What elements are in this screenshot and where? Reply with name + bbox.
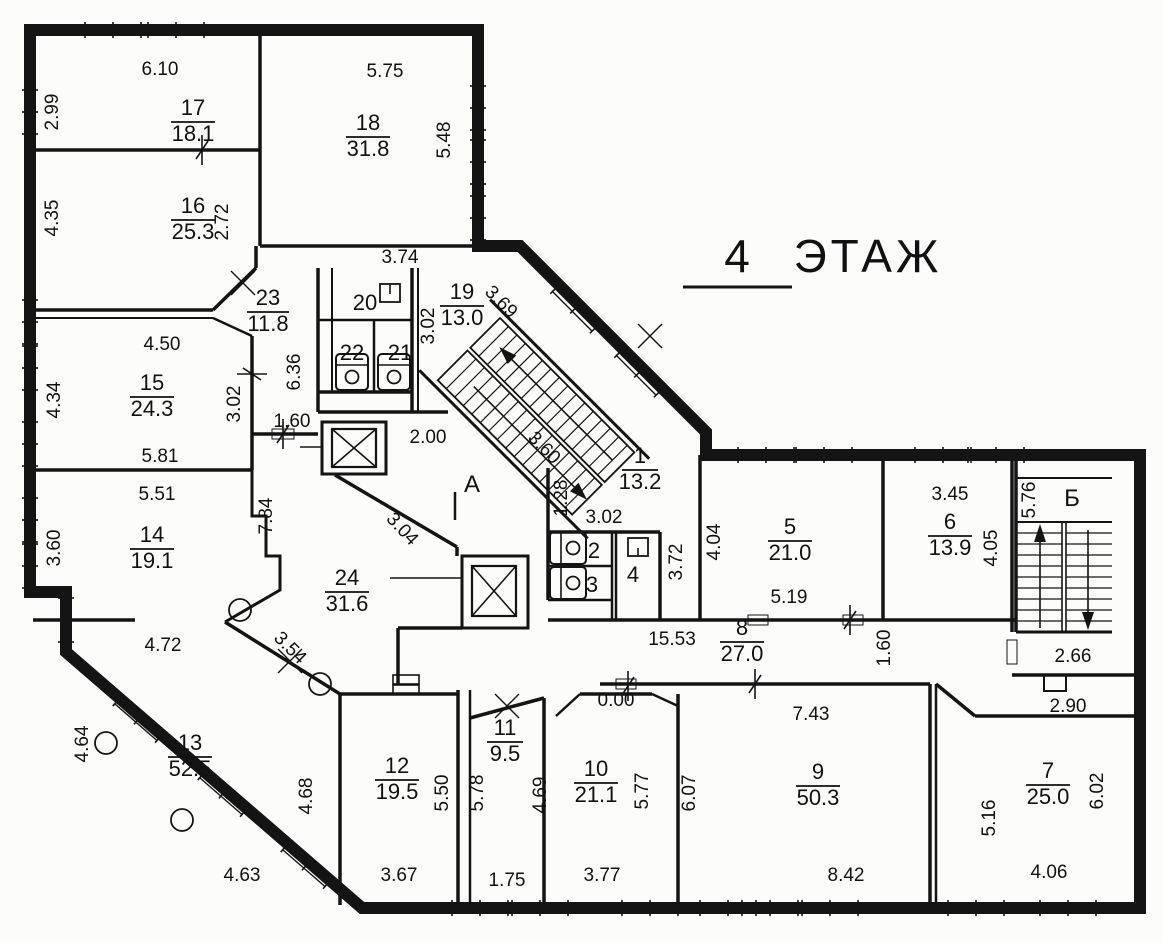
dim-r10-top: 0.00 bbox=[598, 690, 635, 711]
dim-r6-right: 4.05 bbox=[981, 530, 1002, 567]
dim-r7-top-strip: 2.90 bbox=[1050, 696, 1087, 717]
dim-r14-right: 7.84 bbox=[256, 497, 277, 534]
floor-plan-drawing: 4 ЭТАЖ 1718.1 1625.3 1831.8 1524.3 1419.… bbox=[0, 0, 1163, 943]
dim-r5-left: 4.04 bbox=[704, 523, 725, 560]
room-area-1: 13.2 bbox=[619, 469, 662, 494]
dim-r9-left: 6.07 bbox=[679, 775, 700, 812]
floor-plan-page: 4 ЭТАЖ 1718.1 1625.3 1831.8 1524.3 1419.… bbox=[0, 0, 1163, 943]
dim-hall-right: 3.72 bbox=[666, 544, 687, 581]
room-number-10: 10 bbox=[584, 756, 608, 781]
dim-lobby-diagonal: 3.04 bbox=[382, 509, 423, 551]
room-area-5: 21.0 bbox=[769, 540, 812, 565]
dim-r13-right: 4.68 bbox=[296, 778, 317, 815]
room-number-20: 20 bbox=[353, 290, 377, 315]
dim-r11-left: 5.78 bbox=[467, 775, 488, 812]
room-area-19: 13.0 bbox=[441, 305, 484, 330]
room-area-9: 50.3 bbox=[797, 785, 840, 810]
room-number-6: 6 bbox=[944, 509, 956, 534]
dim-r10-right: 5.77 bbox=[632, 773, 653, 810]
room-number-9: 9 bbox=[812, 759, 824, 784]
room-number-7: 7 bbox=[1042, 758, 1054, 783]
room-area-17: 18.1 bbox=[172, 121, 215, 146]
zone-label-stairwell-b: Б bbox=[1064, 485, 1080, 512]
room-number-3: 3 bbox=[586, 572, 598, 597]
wall-pier bbox=[1044, 675, 1066, 691]
dim-r15-right: 3.02 bbox=[224, 386, 245, 423]
dim-r13-diagonal: 3.54 bbox=[269, 628, 310, 669]
room-area-15: 24.3 bbox=[131, 396, 174, 421]
room-number-18: 18 bbox=[356, 110, 380, 135]
elevator-1-icon bbox=[322, 422, 386, 474]
dim-stair-b-bottom: 2.66 bbox=[1055, 646, 1092, 667]
dim-corridor-8-right: 1.60 bbox=[874, 630, 895, 667]
room-area-14: 19.1 bbox=[131, 548, 174, 573]
room-number-13: 13 bbox=[178, 730, 202, 755]
room-area-23: 11.8 bbox=[247, 311, 288, 336]
room-number-4: 4 bbox=[627, 562, 639, 587]
room-number-21: 21 bbox=[388, 340, 412, 365]
dim-door-1-60: 1.60 bbox=[274, 411, 311, 432]
dim-r12-bottom: 3.67 bbox=[381, 865, 418, 886]
room-area-8: 27.0 bbox=[721, 641, 764, 666]
room-number-24: 24 bbox=[335, 565, 359, 590]
dim-r11-bottom: 1.75 bbox=[489, 870, 526, 891]
room-number-15: 15 bbox=[140, 370, 164, 395]
dim-r7-left: 5.16 bbox=[979, 800, 1000, 837]
room-area-24: 31.6 bbox=[326, 591, 369, 616]
dim-r7-right: 6.02 bbox=[1087, 773, 1108, 810]
room-area-11: 9.5 bbox=[490, 741, 521, 766]
room-area-10: 21.1 bbox=[575, 782, 618, 807]
dim-r5-bottom: 5.19 bbox=[771, 587, 808, 608]
room-area-18: 31.8 bbox=[347, 136, 390, 161]
dim-stairs-bottom: 3.60 bbox=[523, 428, 564, 469]
dim-r15-bottom: 5.81 bbox=[142, 446, 179, 467]
dim-r16-height: 4.35 bbox=[42, 200, 63, 237]
room-number-23: 23 bbox=[256, 285, 280, 310]
room-number-11: 11 bbox=[494, 715, 517, 740]
dim-r14-top: 5.51 bbox=[139, 484, 176, 505]
room-area-7: 25.0 bbox=[1027, 784, 1070, 809]
dim-r10-left: 4.69 bbox=[530, 777, 551, 814]
room-number-14: 14 bbox=[140, 522, 164, 547]
dim-r18-width: 5.75 bbox=[367, 61, 404, 82]
dim-r15-width: 4.50 bbox=[144, 334, 181, 355]
dim-r13-bottom: 4.63 bbox=[224, 865, 261, 886]
dim-r18-height: 5.48 bbox=[434, 122, 455, 159]
floor-title-word: ЭТАЖ bbox=[794, 230, 943, 282]
dim-r9-top: 7.43 bbox=[793, 704, 830, 725]
dim-corridor-top: 3.74 bbox=[382, 247, 419, 268]
door-openings bbox=[272, 429, 1017, 689]
room-number-17: 17 bbox=[181, 95, 205, 120]
dim-r17-height: 2.99 bbox=[42, 94, 63, 131]
room-area-6: 13.9 bbox=[929, 535, 972, 560]
dim-lobby-width: 2.00 bbox=[410, 427, 447, 448]
dim-r19-diagonal: 3.69 bbox=[480, 282, 521, 323]
dim-r14-height: 3.60 bbox=[44, 530, 65, 567]
dim-r17-width: 6.10 bbox=[142, 59, 179, 80]
dim-r10-bottom: 3.77 bbox=[584, 865, 621, 886]
room-number-19: 19 bbox=[450, 279, 474, 304]
dim-r13-left: 4.64 bbox=[72, 725, 93, 762]
dim-r12-right: 5.50 bbox=[432, 775, 453, 812]
room-area-16: 25.3 bbox=[172, 219, 215, 244]
dim-r6-top: 3.45 bbox=[932, 484, 969, 505]
room-area-13: 52.5 bbox=[169, 756, 212, 781]
dim-r15-height: 4.34 bbox=[44, 381, 65, 418]
dim-r1-bottom: 3.02 bbox=[586, 507, 623, 528]
floor-title-number: 4 bbox=[724, 230, 750, 282]
room-number-12: 12 bbox=[385, 753, 409, 778]
dim-corridor-23: 6.36 bbox=[284, 354, 305, 391]
dim-r16-right: 2.72 bbox=[212, 204, 233, 241]
room-number-16: 16 bbox=[181, 193, 205, 218]
dim-r7-bottom: 4.06 bbox=[1031, 862, 1068, 883]
dim-r13-top: 4.72 bbox=[145, 635, 182, 656]
dim-r19-left: 3.02 bbox=[418, 308, 439, 345]
elevator-2-icon bbox=[462, 556, 528, 628]
dim-stair-b-left: 5.76 bbox=[1019, 482, 1040, 519]
room-number-2: 2 bbox=[588, 538, 600, 563]
dim-r9-bottom: 8.42 bbox=[828, 865, 865, 886]
dim-corridor-8-left: 15.53 bbox=[648, 629, 696, 650]
room-area-12: 19.5 bbox=[376, 779, 419, 804]
room-number-5: 5 bbox=[784, 514, 796, 539]
room-number-22: 22 bbox=[340, 340, 364, 365]
room-number-1: 1 bbox=[634, 443, 646, 468]
dim-r1-left: 1.28 bbox=[551, 480, 572, 517]
zone-label-vestibule: A bbox=[464, 471, 480, 498]
room-number-8: 8 bbox=[736, 615, 748, 640]
floor-title: 4 ЭТАЖ bbox=[683, 230, 942, 287]
